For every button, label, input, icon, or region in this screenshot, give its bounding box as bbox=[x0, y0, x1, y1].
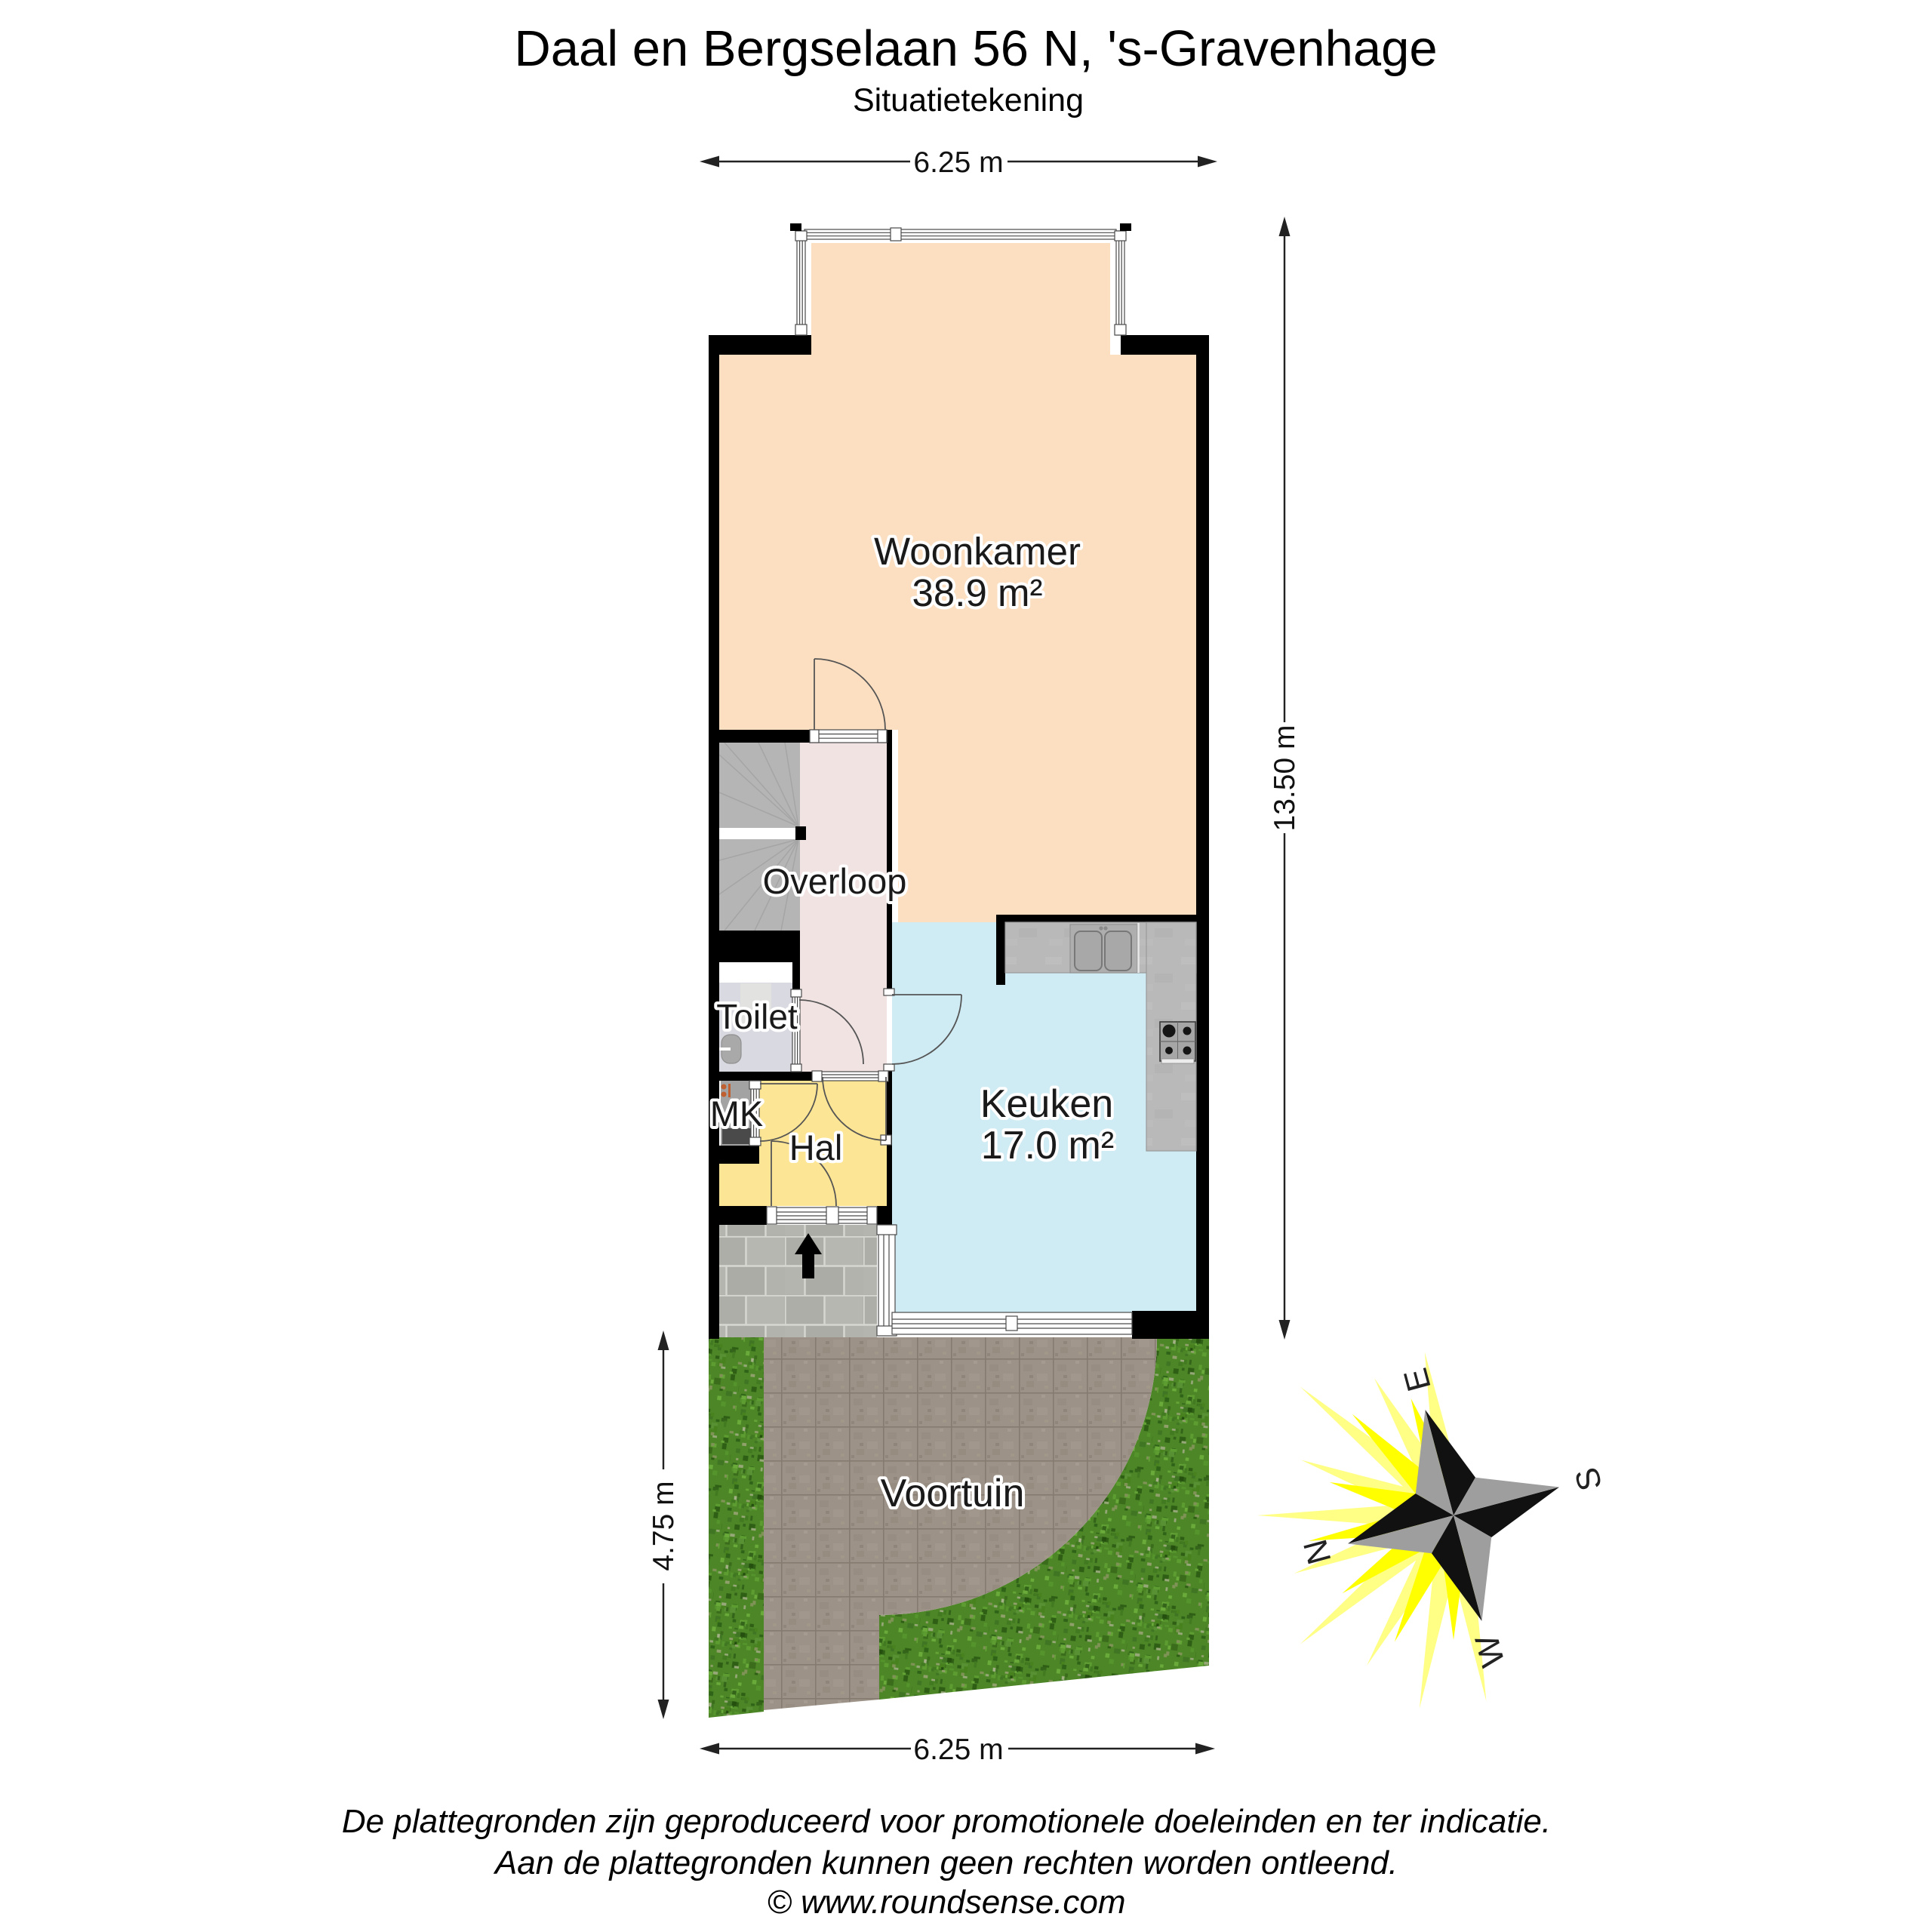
svg-text:Overloop: Overloop bbox=[763, 861, 907, 901]
svg-text:Voortuin: Voortuin bbox=[881, 1472, 1025, 1515]
svg-text:13.50 m: 13.50 m bbox=[1269, 725, 1301, 832]
svg-text:4.75 m: 4.75 m bbox=[648, 1481, 680, 1571]
svg-text:© www.roundsense.com: © www.roundsense.com bbox=[767, 1884, 1125, 1921]
svg-text:Hal: Hal bbox=[789, 1128, 843, 1168]
svg-text:17.0 m²: 17.0 m² bbox=[981, 1124, 1114, 1168]
svg-text:De plattegronden zijn geproduc: De plattegronden zijn geproduceerd voor … bbox=[342, 1803, 1551, 1840]
svg-text:Situatietekening: Situatietekening bbox=[853, 82, 1084, 118]
svg-text:Aan de plattegronden kunnen ge: Aan de plattegronden kunnen geen rechten… bbox=[493, 1844, 1398, 1881]
svg-text:38.9 m²: 38.9 m² bbox=[912, 571, 1043, 614]
svg-text:6.25 m: 6.25 m bbox=[913, 146, 1003, 179]
svg-text:Woonkamer: Woonkamer bbox=[874, 530, 1081, 573]
svg-text:Daal en Bergselaan 56 N, 's-Gr: Daal en Bergselaan 56 N, 's-Gravenhage bbox=[514, 20, 1437, 77]
svg-text:Keuken: Keuken bbox=[980, 1082, 1113, 1126]
svg-text:Toilet: Toilet bbox=[716, 997, 798, 1036]
svg-text:MK: MK bbox=[710, 1094, 764, 1134]
svg-text:6.25 m: 6.25 m bbox=[913, 1734, 1003, 1766]
